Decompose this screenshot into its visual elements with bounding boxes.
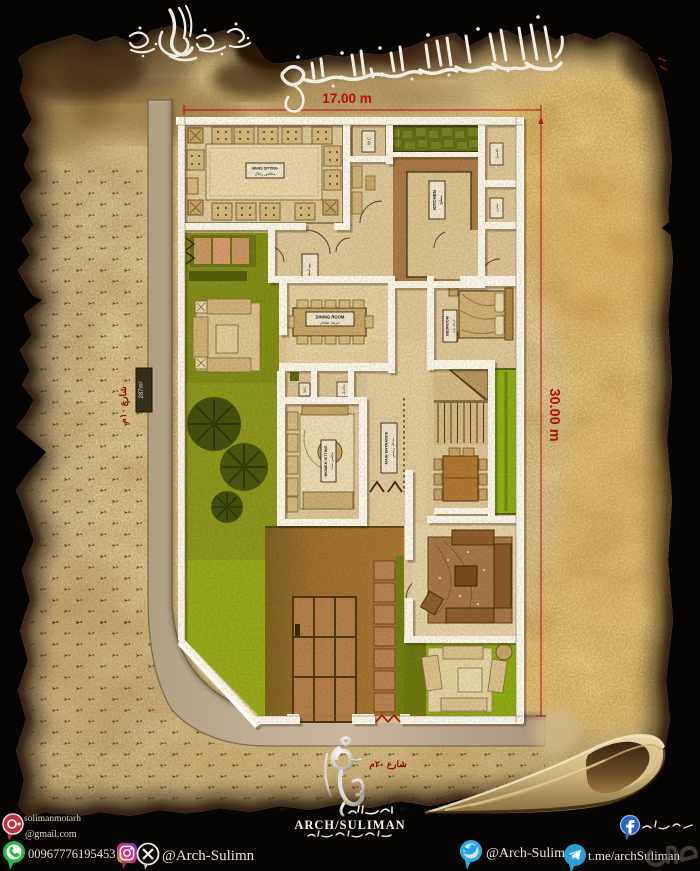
svg-text:@gmail.com: @gmail.com xyxy=(25,829,77,840)
svg-text:ARCH/SULIMAN: ARCH/SULIMAN xyxy=(294,818,405,832)
svg-text:شارع ١٠م: شارع ١٠م xyxy=(118,386,129,424)
svg-text:17.00 m: 17.00 m xyxy=(322,91,372,106)
svg-text:شارع ٢٠م: شارع ٢٠م xyxy=(369,759,407,770)
svg-text:@Arch-Sulimn: @Arch-Sulimn xyxy=(162,848,255,864)
svg-text:00967776195453: 00967776195453 xyxy=(28,847,116,861)
svg-text:287m²: 287m² xyxy=(139,381,145,398)
svg-text:solimanmotarh: solimanmotarh xyxy=(24,814,81,824)
svg-text:30.00 m: 30.00 m xyxy=(546,388,562,441)
svg-text:@Arch-Sulimn: @Arch-Sulimn xyxy=(486,846,572,861)
